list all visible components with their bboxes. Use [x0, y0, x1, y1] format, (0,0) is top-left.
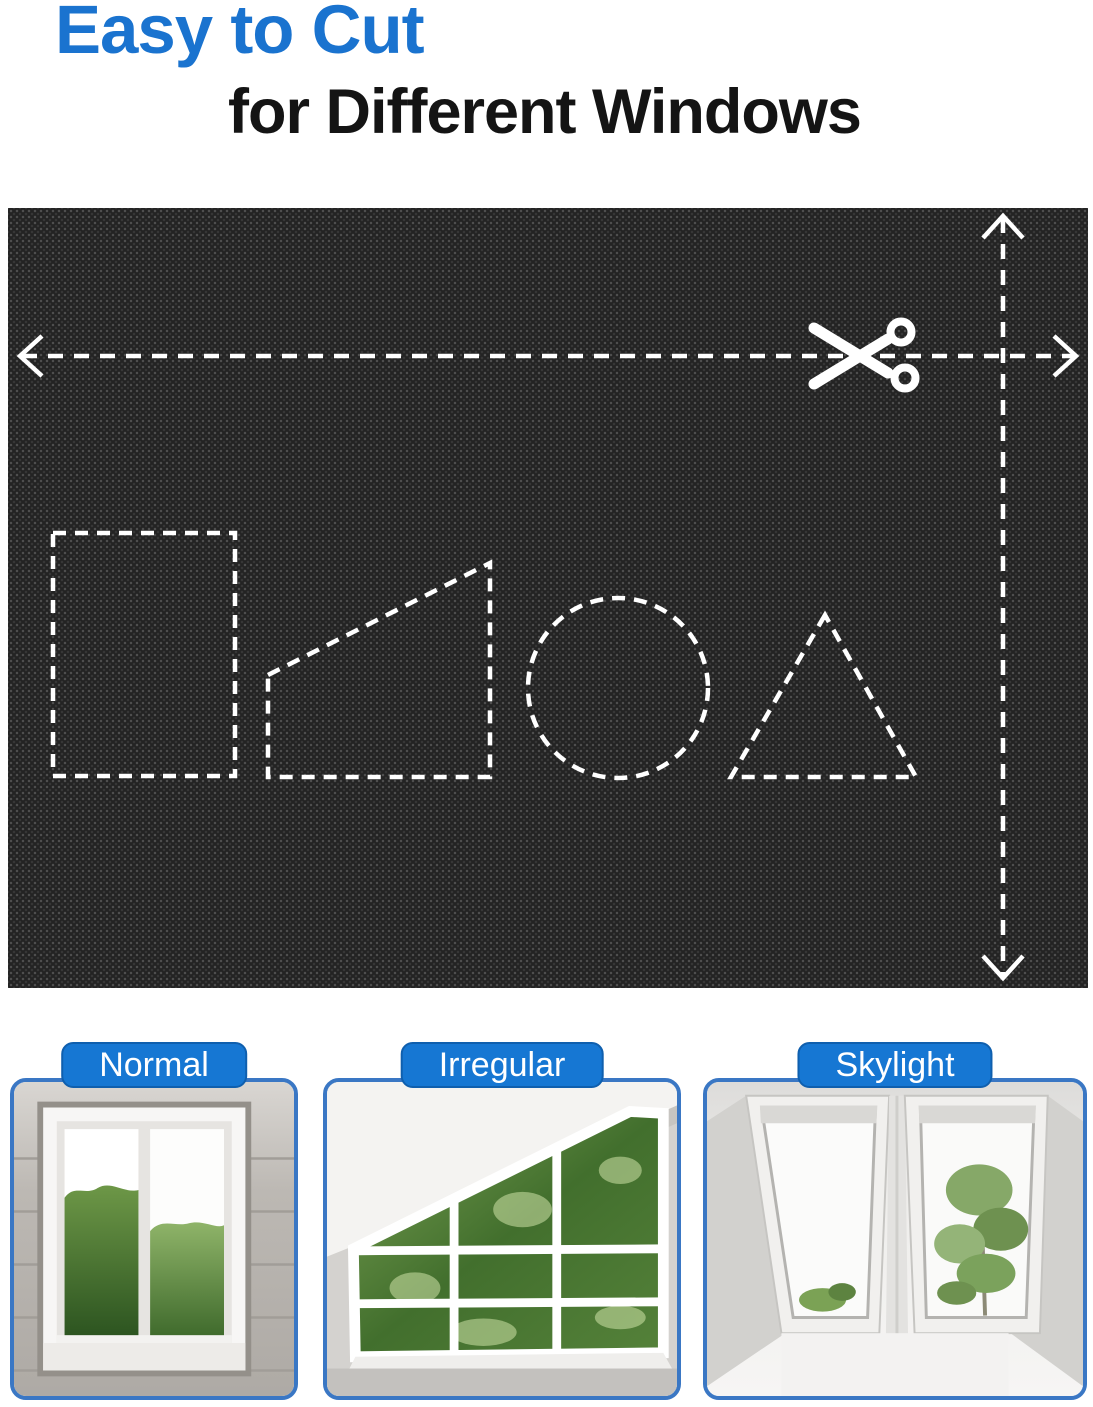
cut-shape-triangle — [731, 615, 916, 777]
photo-card-normal — [10, 1078, 298, 1400]
label-irregular-window: Irregular — [401, 1042, 604, 1088]
label-skylight-window: Skylight — [797, 1042, 992, 1088]
photo-card-skylight — [703, 1078, 1087, 1400]
horizontal-cut-line — [20, 336, 1076, 376]
cut-guides-overlay — [8, 208, 1088, 988]
fabric-swatch — [8, 208, 1088, 988]
cut-shape-rectangle — [53, 533, 235, 776]
headline-main: for Different Windows — [228, 76, 861, 148]
product-infographic: Easy to Cut for Different Windows — [0, 0, 1093, 1407]
normal-window-photo — [14, 1082, 294, 1396]
irregular-window-photo — [327, 1082, 677, 1396]
label-normal-window: Normal — [61, 1042, 247, 1088]
cut-shape-circle — [528, 598, 708, 778]
cut-shape-trapezoid — [268, 563, 490, 777]
vertical-cut-line — [983, 216, 1023, 978]
photo-card-irregular — [323, 1078, 681, 1400]
skylight-window-photo — [707, 1082, 1083, 1396]
headline-accent: Easy to Cut — [55, 0, 424, 69]
